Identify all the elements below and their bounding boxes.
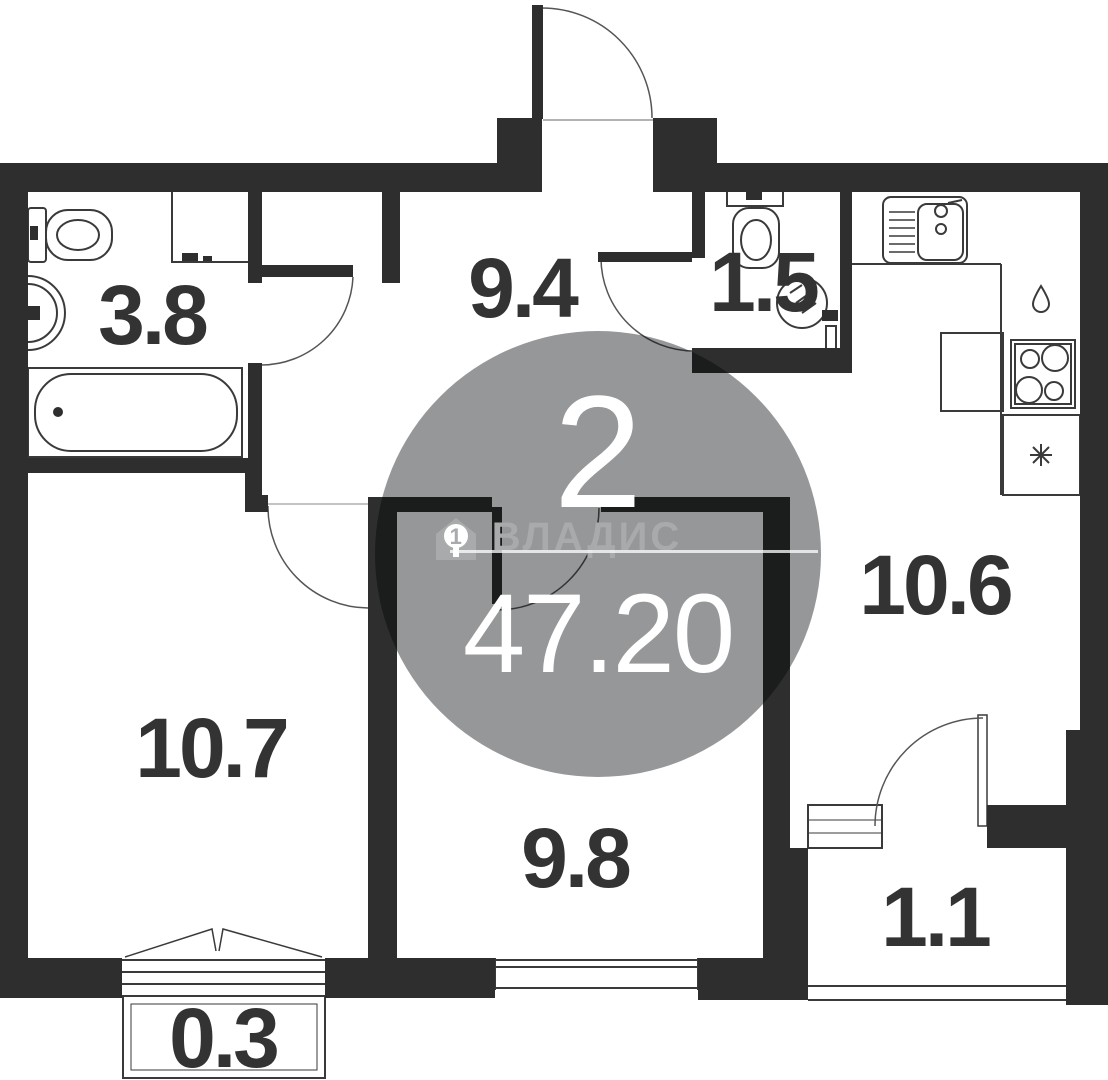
balcony-11-outline xyxy=(808,986,1066,1000)
fridge-icon xyxy=(1003,415,1080,495)
wall-kitchen-br xyxy=(987,805,1066,848)
brand-house-number: 1 xyxy=(430,524,482,550)
kitchen-counter xyxy=(852,264,1003,495)
wall-left-outer xyxy=(0,163,28,998)
wall-top-left xyxy=(0,163,542,192)
wc-door-leaf xyxy=(598,252,692,262)
wall-bottom-bedroom xyxy=(698,958,790,1000)
wall-bathtub-bottom xyxy=(0,458,262,473)
niche xyxy=(172,188,250,262)
entrance-door-arc xyxy=(542,8,652,118)
wall-right-upper xyxy=(1080,163,1108,733)
room-label-wc: 1.5 xyxy=(709,240,817,324)
wall-bathroom-right-lo xyxy=(248,363,262,473)
floor-plan: 2 1 ВЛАДИС 47.20 3.8 9.4 1.5 10.6 10.7 9… xyxy=(0,0,1108,1080)
bathroom-door-leaf xyxy=(255,265,353,277)
wall-bottom-mid xyxy=(325,958,495,998)
window-balcony-03 xyxy=(122,929,325,984)
entrance-jamb-left xyxy=(497,118,542,164)
washbasin-icon xyxy=(24,276,65,350)
kitchen-sink-icon xyxy=(883,197,967,263)
room-label-bedroom: 9.8 xyxy=(521,816,629,900)
room-label-balcony-bottom: 0.3 xyxy=(169,996,277,1080)
snowflake-icon xyxy=(1030,444,1052,466)
water-drop-icon xyxy=(1033,286,1049,312)
entrance-jamb-right xyxy=(653,118,717,164)
window-balcony-11-block xyxy=(808,805,882,848)
toilet-icon xyxy=(28,208,112,262)
balcony-door-arc xyxy=(875,718,983,826)
wall-right-lower xyxy=(1066,730,1108,1005)
room-label-balcony-right: 1.1 xyxy=(881,875,989,959)
stove-icon xyxy=(1011,340,1075,408)
room-label-bathroom: 3.8 xyxy=(98,273,206,357)
room-label-living-room: 10.7 xyxy=(135,706,287,790)
entrance-door-leaf xyxy=(532,5,543,119)
room-label-kitchen: 10.6 xyxy=(859,543,1011,627)
brand-row: 1 ВЛАДИС xyxy=(333,512,779,562)
wall-balcony11-left xyxy=(790,848,808,1000)
wall-hall-stub xyxy=(382,163,400,283)
brand-underline xyxy=(450,550,818,553)
bathtub-icon xyxy=(28,368,242,457)
wall-top-right xyxy=(653,163,1108,192)
living-door-jamb xyxy=(245,495,268,512)
window-bedroom xyxy=(495,958,698,990)
balcony-door-leaf xyxy=(978,715,987,826)
wall-wc-left xyxy=(692,188,705,258)
watermark-rooms-count: 2 xyxy=(375,372,821,532)
watermark-total-area: 47.20 xyxy=(375,578,821,690)
room-label-hallway: 9.4 xyxy=(468,246,576,330)
brand-house-icon: 1 xyxy=(430,512,482,562)
wall-wc-right xyxy=(840,188,852,373)
wall-bottom-left xyxy=(0,958,122,998)
bathroom-door-arc xyxy=(261,277,353,365)
